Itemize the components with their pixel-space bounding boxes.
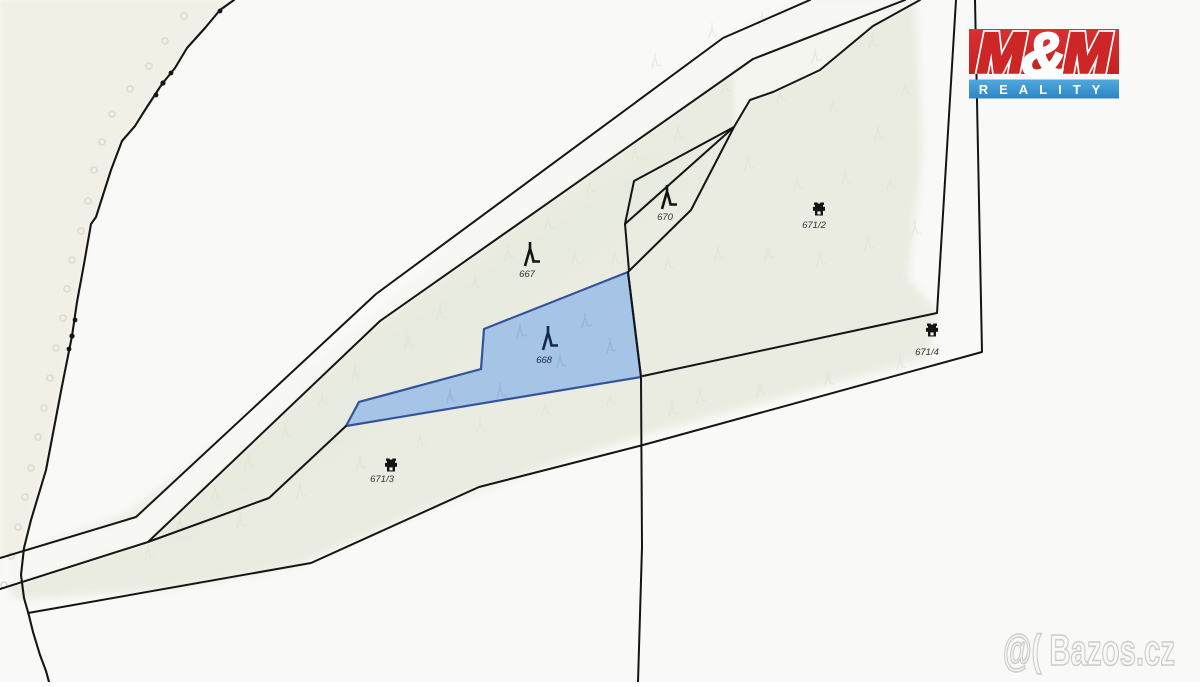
svg-text:REALITY: REALITY — [979, 82, 1112, 97]
svg-text:667: 667 — [519, 269, 536, 280]
svg-text:@( Bazos.cz: @( Bazos.cz — [1003, 626, 1175, 675]
svg-text:671/2: 671/2 — [802, 220, 826, 231]
svg-text:671/3: 671/3 — [370, 474, 394, 485]
svg-text:671/4: 671/4 — [915, 347, 939, 358]
svg-text:670: 670 — [657, 212, 674, 223]
svg-text:668: 668 — [536, 355, 553, 366]
